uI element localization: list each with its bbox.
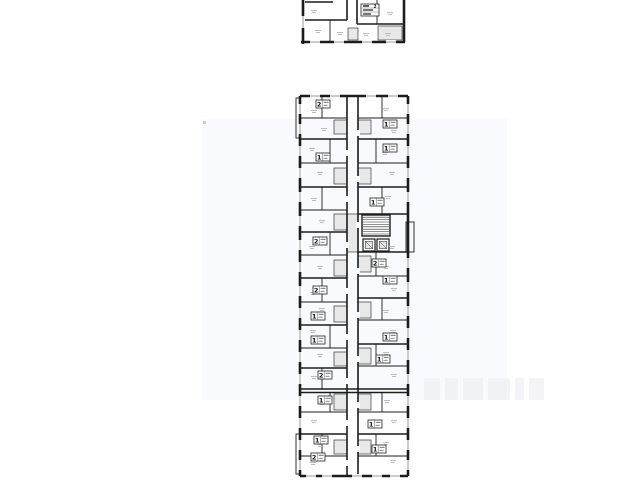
unit-room-count: 1 (377, 355, 382, 363)
unit-badge: 1 (370, 198, 384, 206)
room-label-mark (338, 34, 342, 35)
room-label-mark (337, 32, 343, 33)
room-label-mark (311, 420, 317, 421)
room-label-mark (312, 378, 316, 379)
unit-room-count: 2 (317, 100, 322, 108)
door-gap (356, 176, 360, 182)
room-label-mark (309, 246, 315, 247)
unit-area-mark (376, 425, 380, 426)
room-label-mark (319, 308, 325, 309)
unit-badge: 2 (313, 286, 327, 294)
unit-room-count: 1 (369, 420, 374, 428)
unit-area-mark (324, 158, 328, 159)
unit-badge: 1 (318, 396, 332, 404)
unit-badge: 2 (313, 237, 327, 245)
room-label-mark (317, 354, 323, 355)
unit-room-count: 1 (371, 198, 376, 206)
unit-badge: 1 (383, 276, 397, 284)
unit-badge: 1 (383, 333, 397, 341)
badge-fill-mark (363, 9, 373, 11)
unit-badge: 1 (314, 436, 328, 444)
unit-area-mark (378, 203, 382, 204)
room-label-mark (391, 130, 397, 131)
room-label-mark (312, 12, 316, 13)
room-label-mark (386, 35, 390, 36)
unit-area-mark (391, 335, 396, 336)
unit-badge: 1 (376, 355, 390, 363)
unit-area-mark (380, 261, 385, 262)
elevator-shaft (363, 239, 375, 251)
unit-room-count: 2 (374, 4, 377, 9)
unit-badge: 1 (311, 336, 325, 344)
room-label-mark (311, 376, 317, 377)
unit-badge: 1 (372, 445, 386, 453)
door-gap (356, 446, 360, 452)
unit-area-mark (380, 447, 385, 448)
unit-room-count: 1 (384, 120, 389, 128)
badge-fill-mark (363, 13, 371, 15)
room-label-mark (390, 460, 396, 461)
room-label-mark (311, 10, 317, 11)
room-label-mark (311, 464, 315, 465)
room-wet-zone (358, 394, 371, 410)
unit-room-count: 2 (312, 453, 317, 461)
room-wet-zone (334, 168, 347, 184)
unit-area-mark (376, 422, 381, 423)
unit-area-mark (391, 125, 395, 126)
room-label-mark (322, 130, 326, 131)
room-label-mark (318, 356, 322, 357)
unit-area-mark (384, 357, 389, 358)
unit-room-count: 1 (384, 333, 389, 341)
room-label-mark (310, 150, 314, 151)
room-label-mark (383, 442, 389, 443)
unit-area-mark (391, 281, 395, 282)
room-label-mark (312, 200, 316, 201)
unit-area-mark (322, 441, 326, 442)
unit-area-mark (391, 122, 396, 123)
watermark-letter (463, 378, 483, 400)
watermark-letter (445, 378, 458, 400)
unit-area-mark (380, 264, 384, 265)
unit-badge: 1 (316, 153, 330, 161)
room-label-mark (391, 420, 397, 421)
unit-area-mark (319, 317, 323, 318)
unit-area-mark (324, 155, 329, 156)
unit-area-mark (384, 360, 388, 361)
watermark-letter (488, 378, 510, 400)
unit-badge: 2 (372, 259, 386, 267)
unit-room-count: 1 (319, 396, 324, 404)
unit-room-count: 1 (315, 436, 320, 444)
watermark-glyphs (424, 378, 544, 400)
stairwell-outline (362, 215, 390, 236)
unit-room-count: 2 (314, 286, 319, 294)
room-label-mark (390, 174, 394, 175)
unit-badge: 1 (368, 420, 382, 428)
room-wet-zone (334, 306, 347, 322)
room-label-mark (310, 330, 316, 331)
unit-area-mark (391, 149, 395, 150)
room-wet-zone (334, 352, 347, 366)
unit-badge: 2 (361, 4, 379, 16)
room-label-mark (310, 248, 314, 249)
unit-badge: 2 (316, 100, 330, 108)
room-label-mark (391, 462, 395, 463)
unit-area-mark (321, 242, 325, 243)
unit-room-count: 1 (373, 445, 378, 453)
unit-area-mark (321, 239, 326, 240)
room-wet-zone (334, 214, 347, 230)
door-gap (345, 288, 349, 294)
door-gap (356, 312, 360, 318)
door-gap (356, 402, 360, 408)
room-wet-zone (358, 168, 371, 184)
room-label-mark (383, 310, 389, 311)
stairwell (362, 215, 390, 236)
room-label-mark (316, 32, 320, 33)
room-label-mark (317, 172, 323, 173)
room-label-mark (317, 266, 323, 267)
room-label-mark (391, 374, 397, 375)
unit-room-count: 1 (312, 312, 317, 320)
room-label-mark (318, 446, 322, 447)
unit-area-mark (319, 314, 324, 315)
unit-badge: 1 (383, 120, 397, 128)
room-wet-zone (334, 440, 347, 454)
room-label-mark (363, 33, 369, 34)
room-label-mark (319, 220, 325, 221)
unit-area-mark (391, 338, 395, 339)
room-wet-zone (348, 28, 358, 40)
room-label-mark (311, 332, 315, 333)
room-label-mark (309, 148, 315, 149)
unit-room-count: 2 (319, 371, 324, 379)
room-label-mark (320, 222, 324, 223)
door-gap (345, 196, 349, 202)
unit-area-mark (321, 291, 325, 292)
door-gap (356, 130, 360, 136)
watermark-letter (515, 378, 524, 400)
upper-floor-plan-fragment: 2 (301, 0, 405, 44)
room-label-mark (320, 310, 324, 311)
room-wet-zone (358, 440, 371, 454)
unit-badge: 2 (311, 453, 325, 461)
unit-area-mark (326, 373, 331, 374)
door-gap (345, 242, 349, 248)
room-label-mark (389, 246, 395, 247)
room-wet-zone (358, 256, 371, 272)
door-gap (356, 222, 360, 228)
unit-area-mark (324, 102, 329, 103)
room-label-mark (385, 33, 391, 34)
unit-area-mark (326, 398, 331, 399)
room-label-mark (384, 312, 388, 313)
unit-area-mark (319, 338, 324, 339)
room-label-mark (388, 14, 392, 15)
room-label-mark (311, 110, 317, 111)
room-label-mark (385, 196, 391, 197)
room-label-mark (384, 110, 388, 111)
room-label-mark (321, 128, 327, 129)
unit-area-mark (326, 401, 330, 402)
door-gap (345, 420, 349, 426)
door-gap (345, 334, 349, 340)
room-label-mark (310, 462, 316, 463)
room-wet-zone (334, 260, 347, 276)
room-label-mark (383, 108, 389, 109)
unit-badge: 1 (383, 144, 397, 152)
room-label-mark (392, 376, 396, 377)
room-label-mark (392, 422, 396, 423)
room-label-mark (385, 402, 389, 403)
room-wet-zone (334, 120, 347, 134)
door-gap (345, 150, 349, 156)
room-label-mark (383, 352, 389, 353)
unit-area-mark (380, 450, 384, 451)
room-label-mark (392, 290, 396, 291)
unit-room-count: 1 (312, 336, 317, 344)
unit-room-count: 1 (317, 153, 322, 161)
room-wet-zone (334, 394, 347, 410)
room-label-mark (311, 198, 317, 199)
room-wet-zone (358, 120, 371, 134)
door-gap (345, 460, 349, 466)
room-label-mark (315, 30, 321, 31)
unit-area-mark (326, 376, 330, 377)
door-gap (345, 378, 349, 384)
unit-room-count: 2 (314, 237, 319, 245)
unit-badge: 1 (311, 312, 325, 320)
elevator-shaft (377, 239, 389, 251)
room-label-mark (390, 330, 396, 331)
door-gap (356, 268, 360, 274)
badge-fill-mark (363, 5, 369, 7)
room-label-mark (390, 248, 394, 249)
room-label-mark (391, 288, 397, 289)
room-label-mark (312, 112, 316, 113)
door-gap (356, 356, 360, 362)
unit-area-mark (321, 288, 326, 289)
room-label-mark (312, 422, 316, 423)
room-wet-zone (358, 348, 371, 364)
main-floor-plan: 2122112112111211111 (296, 94, 414, 478)
room-label-mark (318, 268, 322, 269)
unit-area-mark (324, 105, 328, 106)
unit-badge: 2 (318, 371, 332, 379)
unit-area-mark (378, 200, 383, 201)
unit-area-mark (391, 146, 396, 147)
room-label-mark (364, 35, 368, 36)
watermark-letter (424, 378, 440, 400)
room-label-mark (384, 268, 388, 269)
room-label-mark (383, 154, 387, 155)
room-label-mark (384, 400, 390, 401)
room-label-mark (318, 174, 322, 175)
unit-room-count: 1 (384, 276, 389, 284)
floor-plan-canvas: 22122112112111211111 (0, 0, 640, 480)
room-label-mark (389, 172, 395, 173)
room-label-mark (387, 12, 393, 13)
unit-area-mark (319, 458, 323, 459)
room-label-mark (392, 132, 396, 133)
unit-room-count: 2 (373, 259, 378, 267)
floor-plan-page: 22122112112111211111 (0, 0, 640, 480)
unit-area-mark (319, 341, 323, 342)
unit-area-mark (319, 455, 324, 456)
watermark-letter (529, 378, 544, 400)
unit-room-count: 1 (384, 144, 389, 152)
room-label-mark (386, 198, 390, 199)
unit-area-mark (391, 278, 396, 279)
unit-area-mark (322, 438, 327, 439)
room-wet-zone (358, 302, 371, 318)
